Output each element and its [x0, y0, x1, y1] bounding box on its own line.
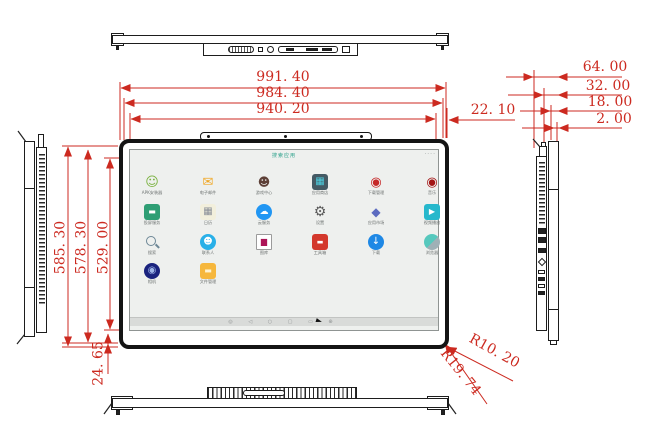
dim-depth-2: 2. 00	[585, 111, 643, 128]
app-contacts-icon: ☻	[200, 234, 216, 250]
app-market[interactable]: ◆应用市场	[350, 204, 402, 231]
app-apk-installer-icon: ☺	[144, 174, 160, 190]
dim-frame-width: 984. 40	[228, 85, 338, 102]
app-toolbox[interactable]: ▬工具箱	[294, 234, 346, 261]
app-camera[interactable]: ◉相机	[126, 263, 178, 290]
app-browser-label: 浏览器	[408, 251, 456, 256]
app-file-manager[interactable]: ▬文件管理	[182, 263, 234, 290]
app-email-icon: ✉	[200, 174, 216, 190]
app-gallery-icon: ▆	[256, 234, 272, 250]
screw-icon	[207, 135, 210, 138]
dim-overall-width: 991. 40	[228, 69, 338, 86]
app-game-center-icon: ☻	[256, 174, 272, 190]
app-settings[interactable]: ⚙设置	[294, 204, 346, 231]
dim-radius-10: R10. 20	[462, 329, 526, 375]
left-nub	[38, 134, 44, 148]
app-contacts-label: 联系人	[184, 251, 232, 256]
app-download-manager-label: 下载管理	[352, 191, 400, 196]
app-store-label: 应用商店	[296, 191, 344, 196]
app-toolbox-icon: ▬	[312, 234, 328, 250]
app-gallery[interactable]: ▆图库	[238, 234, 290, 261]
app-game-center[interactable]: ☻游戏中心	[238, 174, 290, 201]
app-screen-service[interactable]: ▬投屏服务	[126, 204, 178, 231]
app-calendar-label: 日历	[184, 221, 232, 226]
io-port	[538, 248, 546, 253]
screw-icon	[360, 135, 363, 138]
app-email-label: 电子邮件	[184, 191, 232, 196]
screw-icon	[284, 135, 287, 138]
app-screen-service-label: 投屏服务	[128, 221, 176, 226]
app-market-icon: ◆	[368, 204, 384, 220]
app-store-icon: ▦	[312, 174, 328, 190]
app-apk-installer[interactable]: ☺APK安装器	[126, 174, 178, 201]
app-file-manager-label: 文件管理	[184, 280, 232, 285]
app-downloads-label: 下载	[352, 251, 400, 256]
io-port	[538, 237, 546, 243]
app-download-manager-icon: ◉	[368, 174, 384, 190]
dim-overall-height: 585. 30	[53, 213, 70, 283]
app-browser[interactable]: 浏览器	[406, 234, 458, 261]
app-calendar-icon: ▦	[200, 204, 216, 220]
app-music-icon: ◉	[424, 174, 440, 190]
dim-frame-height: 578. 30	[74, 213, 91, 283]
app-cloud-label: 云服务	[240, 221, 288, 226]
technical-drawing-canvas: 991. 40 984. 40 940. 20 22. 10 64. 00 32…	[0, 0, 650, 438]
left-vent-grille	[39, 154, 45, 304]
app-video-player-label: 视频播放	[408, 221, 456, 226]
app-calendar[interactable]: ▦日历	[182, 204, 234, 231]
app-store[interactable]: ▦应用商店	[294, 174, 346, 201]
app-contacts[interactable]: ☻联系人	[182, 234, 234, 261]
app-camera-icon: ◉	[144, 263, 160, 279]
status-search-label: 搜索应用	[272, 153, 296, 159]
app-camera-label: 相机	[128, 280, 176, 285]
dim-screen-width: 940. 20	[228, 101, 338, 118]
dim-depth-64: 64. 00	[575, 59, 635, 76]
app-search-label: 搜索	[128, 251, 176, 256]
app-toolbox-label: 工具箱	[296, 251, 344, 256]
power-jack-icon	[267, 46, 274, 53]
dim-depth-32: 32. 00	[578, 78, 638, 95]
navigation-bar[interactable]: ◎ ◁ ○ ▢ ▭ ⊕	[130, 317, 438, 326]
app-video-player[interactable]: ▶视频播放	[406, 204, 458, 231]
io-port	[538, 228, 546, 234]
app-file-manager-icon: ▬	[200, 263, 216, 279]
vga-port-icon	[228, 46, 254, 53]
right-vent-grille	[539, 162, 545, 224]
screen-status-bar: 搜索应用	[129, 150, 439, 162]
app-apk-installer-label: APK安装器	[128, 191, 176, 196]
app-music-label: 音乐	[408, 191, 456, 196]
app-browser-icon	[424, 234, 440, 250]
status-icons: ····	[404, 150, 436, 160]
dim-screen-height: 529. 00	[96, 213, 113, 283]
app-music[interactable]: ◉音乐	[406, 174, 458, 201]
app-video-player-icon: ▶	[424, 204, 440, 220]
app-download-manager[interactable]: ◉下载管理	[350, 174, 402, 201]
app-settings-label: 设置	[296, 221, 344, 226]
app-search-icon	[144, 234, 160, 250]
app-cloud-icon: ☁	[256, 204, 272, 220]
app-game-center-label: 游戏中心	[240, 191, 288, 196]
nav-buttons[interactable]: ◎ ◁ ○ ▢ ▭ ⊕	[228, 319, 339, 325]
app-gallery-label: 图库	[240, 251, 288, 256]
dim-bottom-gap: 24. 65	[91, 338, 108, 390]
app-email[interactable]: ✉电子邮件	[182, 174, 234, 201]
dim-depth-18: 18. 00	[580, 94, 640, 111]
app-settings-icon: ⚙	[312, 204, 328, 220]
app-screen-service-icon: ▬	[144, 204, 160, 220]
app-cloud[interactable]: ☁云服务	[238, 204, 290, 231]
app-downloads-icon: ↓	[368, 234, 384, 250]
app-search[interactable]: 搜索	[126, 234, 178, 261]
dim-side-gap: 22. 10	[462, 102, 524, 119]
app-market-label: 应用市场	[352, 221, 400, 226]
app-downloads[interactable]: ↓下载	[350, 234, 402, 261]
